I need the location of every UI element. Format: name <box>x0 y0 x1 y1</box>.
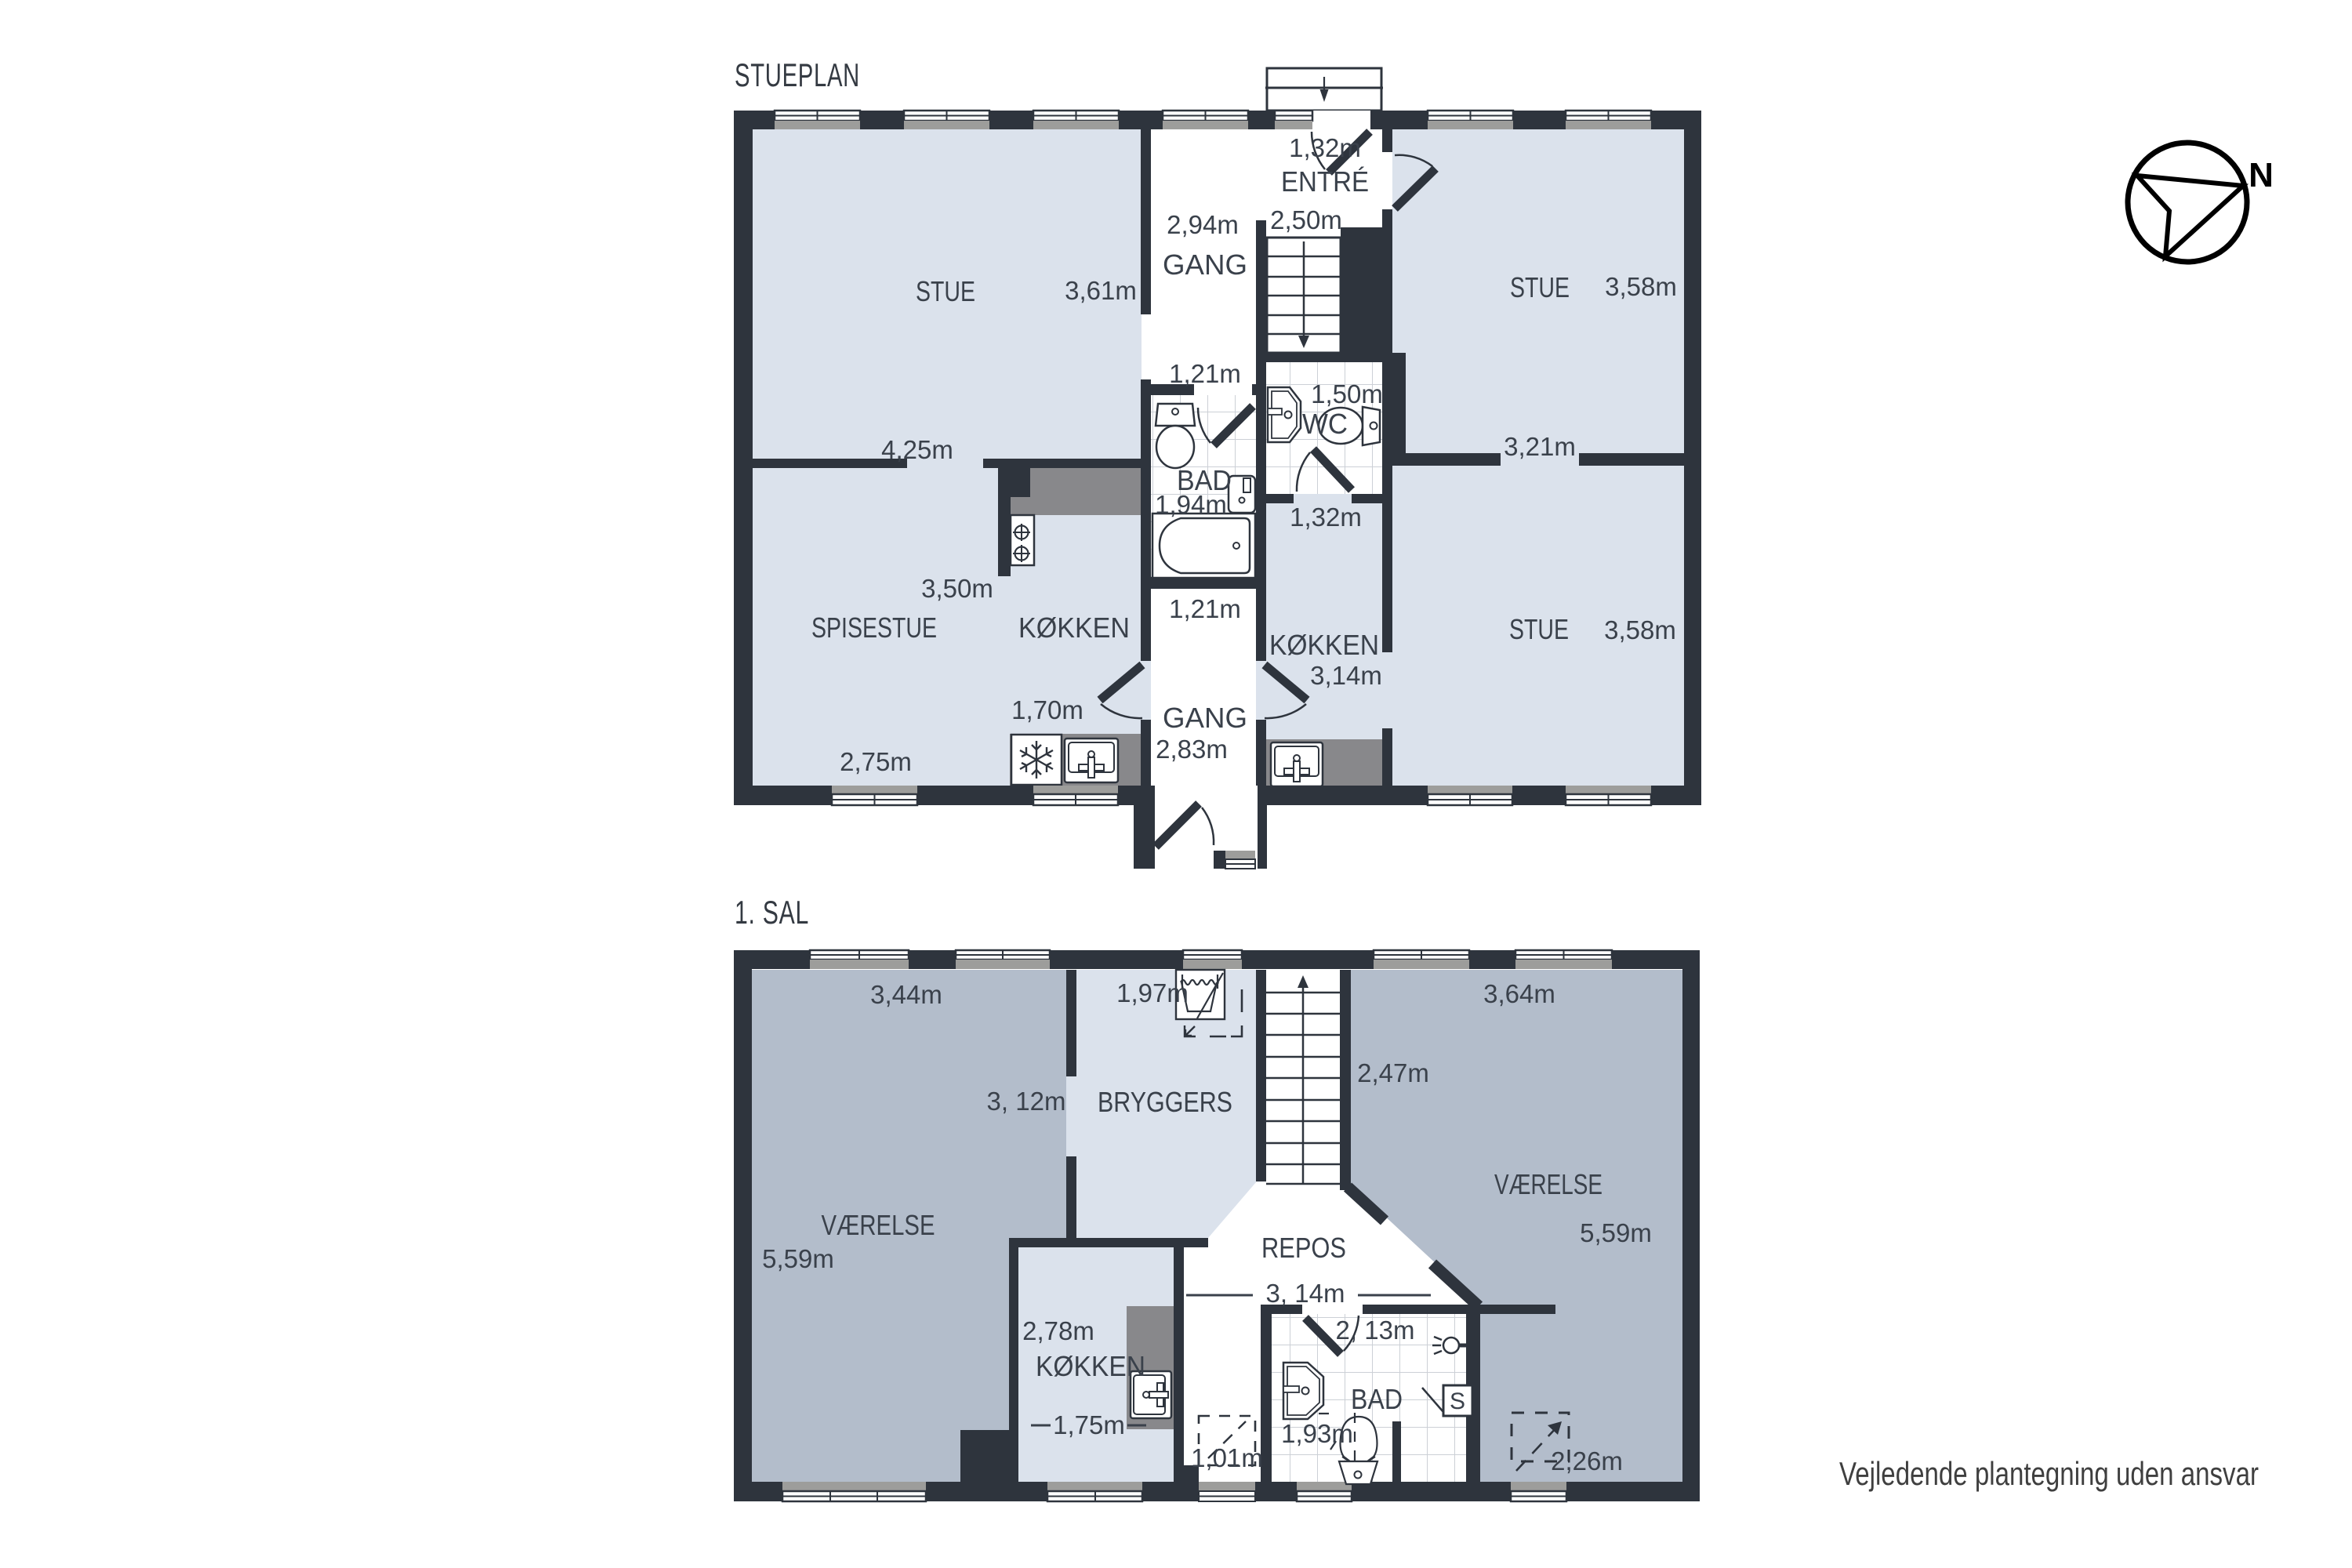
svg-text:1,50m: 1,50m <box>1311 379 1383 408</box>
svg-text:STUEPLAN: STUEPLAN <box>735 56 860 93</box>
svg-text:3,58m: 3,58m <box>1604 615 1676 644</box>
svg-text:VÆRELSE: VÆRELSE <box>822 1209 935 1241</box>
svg-text:3,61m: 3,61m <box>1065 276 1137 305</box>
svg-text:1,94m: 1,94m <box>1155 490 1227 519</box>
svg-text:VÆRELSE: VÆRELSE <box>1494 1168 1602 1200</box>
svg-text:3, 12m: 3, 12m <box>987 1087 1066 1116</box>
svg-text:BAD: BAD <box>1351 1383 1403 1415</box>
svg-text:2,83m: 2,83m <box>1156 735 1228 764</box>
svg-text:1,32m: 1,32m <box>1289 133 1361 162</box>
svg-text:1,21m: 1,21m <box>1169 594 1241 623</box>
svg-text:GANG: GANG <box>1163 702 1247 734</box>
svg-text:2,50m: 2,50m <box>1270 205 1342 234</box>
svg-text:1,01m: 1,01m <box>1191 1443 1263 1472</box>
svg-text:1,75m: 1,75m <box>1053 1410 1125 1439</box>
svg-text:2,78m: 2,78m <box>1022 1316 1094 1345</box>
svg-text:3,44m: 3,44m <box>870 980 942 1009</box>
svg-text:3,64m: 3,64m <box>1483 979 1555 1008</box>
svg-text:3,14m: 3,14m <box>1310 661 1382 690</box>
svg-text:SPISESTUE: SPISESTUE <box>811 612 937 644</box>
svg-text:ENTRÉ: ENTRÉ <box>1281 165 1369 198</box>
svg-text:1,70m: 1,70m <box>1011 695 1083 724</box>
svg-text:2, 13m: 2, 13m <box>1336 1316 1415 1345</box>
svg-text:1,32m: 1,32m <box>1290 503 1362 532</box>
svg-text:GANG: GANG <box>1163 249 1247 281</box>
svg-text:1,93m: 1,93m <box>1281 1419 1353 1448</box>
svg-text:KØKKEN: KØKKEN <box>1269 629 1379 661</box>
svg-text:3,21m: 3,21m <box>1504 432 1576 461</box>
svg-text:N: N <box>2249 156 2274 194</box>
svg-text:5,59m: 5,59m <box>762 1244 834 1273</box>
svg-text:STUE: STUE <box>1509 613 1569 645</box>
svg-text:Vejledende plantegning uden an: Vejledende plantegning uden ansvar <box>1839 1455 2259 1492</box>
svg-text:2,94m: 2,94m <box>1167 210 1239 239</box>
svg-text:REPOS: REPOS <box>1261 1232 1346 1264</box>
svg-text:3, 14m: 3, 14m <box>1266 1279 1345 1308</box>
svg-text:2,75m: 2,75m <box>840 747 912 776</box>
svg-text:4,25m: 4,25m <box>881 435 953 464</box>
svg-text:2,47m: 2,47m <box>1357 1058 1429 1087</box>
svg-text:KØKKEN: KØKKEN <box>1018 612 1130 644</box>
svg-text:STUE: STUE <box>1510 271 1570 303</box>
svg-text:STUE: STUE <box>916 275 975 307</box>
svg-text:S: S <box>1450 1388 1465 1414</box>
svg-text:5,59m: 5,59m <box>1580 1218 1652 1247</box>
svg-text:WC: WC <box>1302 408 1348 440</box>
svg-text:2,26m: 2,26m <box>1551 1446 1623 1475</box>
svg-text:BRYGGERS: BRYGGERS <box>1098 1086 1232 1118</box>
svg-text:1,21m: 1,21m <box>1169 359 1241 388</box>
svg-text:3,58m: 3,58m <box>1605 272 1677 301</box>
svg-text:3,50m: 3,50m <box>921 574 993 603</box>
svg-text:1. SAL: 1. SAL <box>735 894 809 931</box>
svg-text:KØKKEN: KØKKEN <box>1036 1350 1145 1382</box>
svg-text:1,97m: 1,97m <box>1116 978 1189 1007</box>
